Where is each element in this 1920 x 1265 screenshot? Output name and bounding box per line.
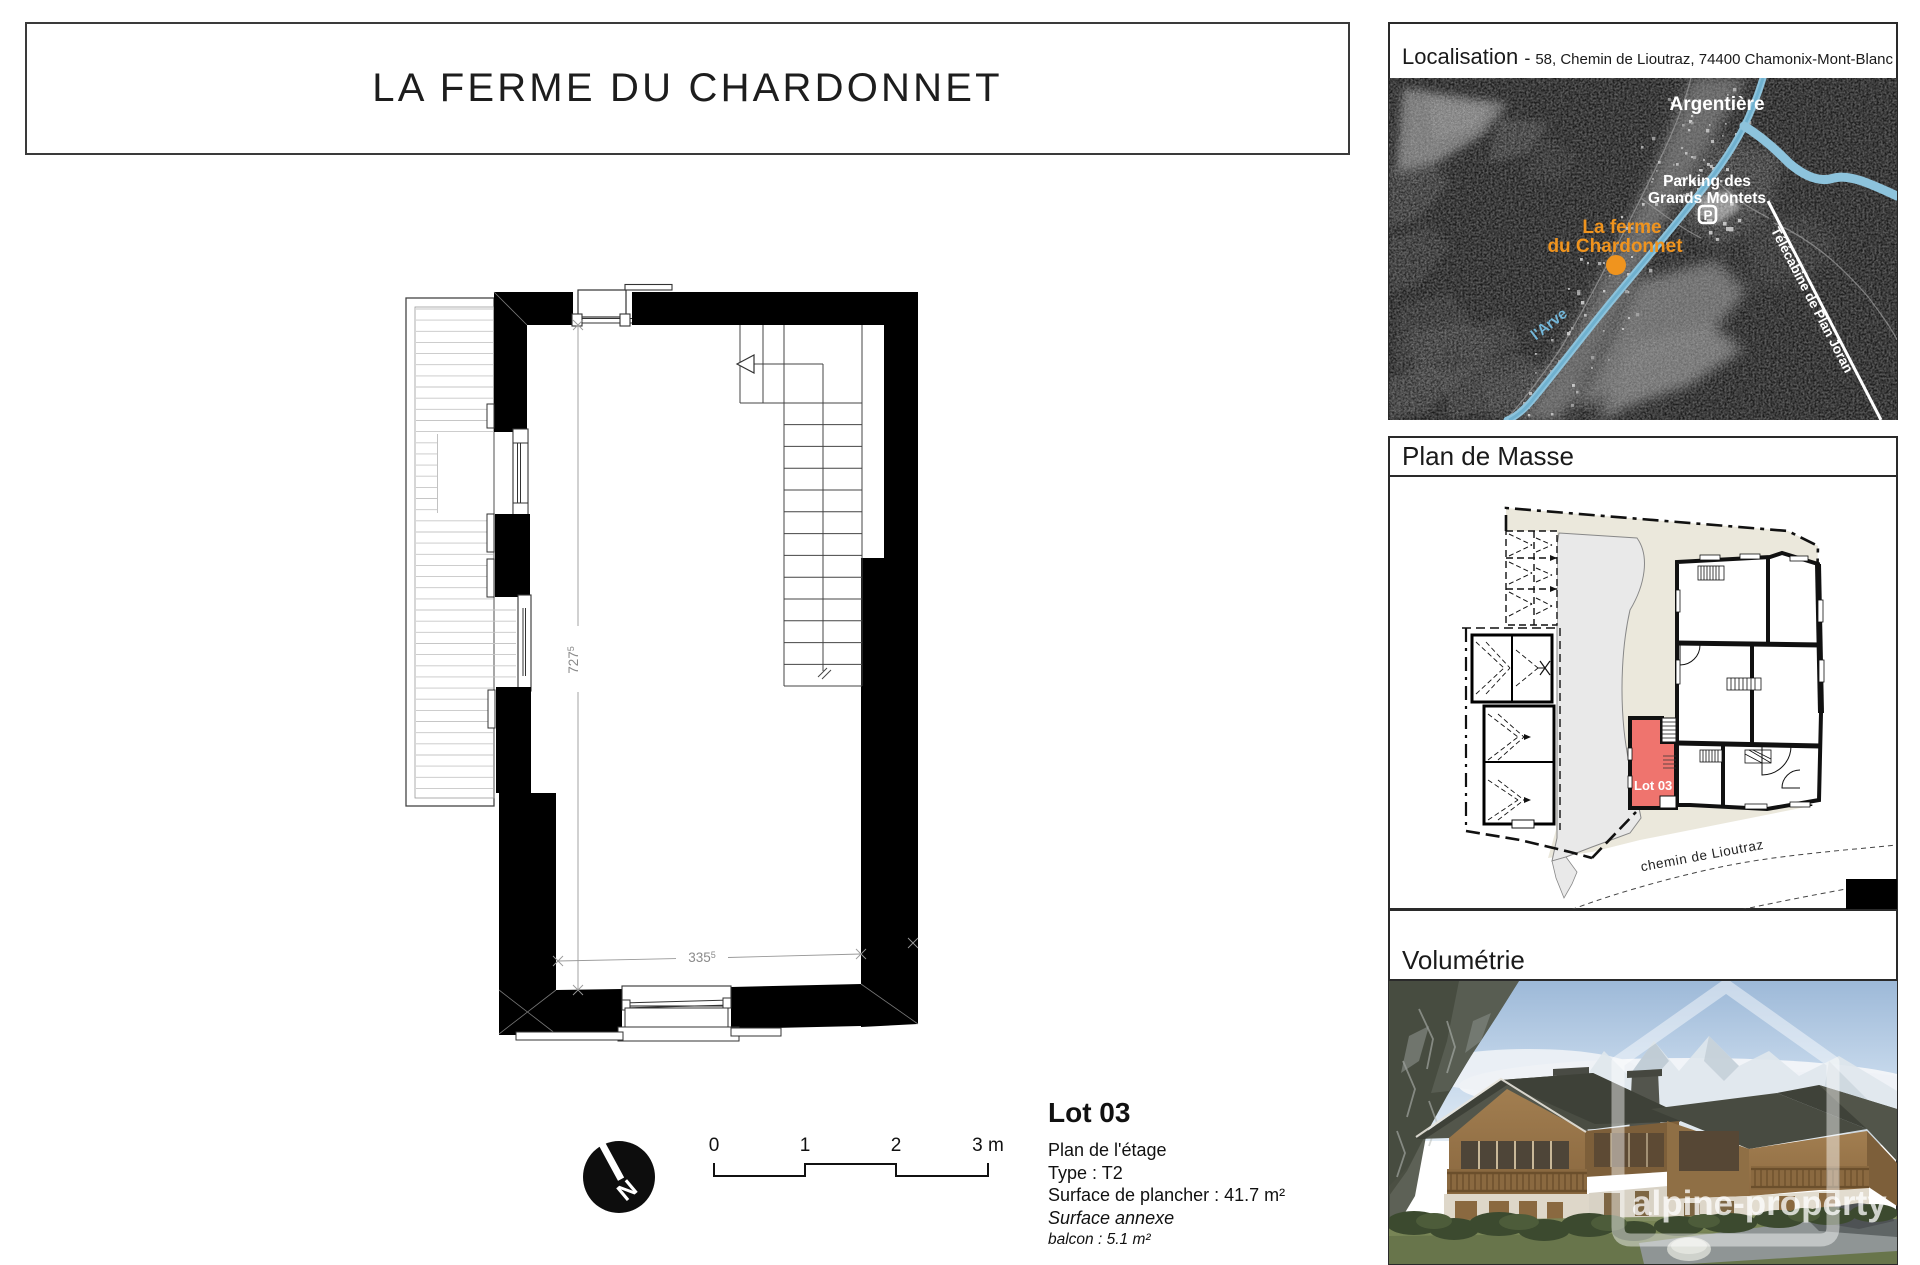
svg-text:3355: 3355 <box>688 950 716 965</box>
svg-text:P: P <box>1704 208 1713 223</box>
svg-text:chemin de Lioutraz: chemin de Lioutraz <box>1639 837 1765 875</box>
svg-text:0: 0 <box>709 1135 720 1156</box>
svg-text:Lot 03: Lot 03 <box>1634 778 1672 793</box>
svg-text:Argentière: Argentière <box>1669 94 1764 115</box>
svg-text:Parking des: Parking des <box>1663 173 1751 190</box>
svg-text:1: 1 <box>800 1135 811 1156</box>
svg-text:3 m: 3 m <box>972 1135 1004 1156</box>
svg-text:Grands Montets: Grands Montets <box>1648 190 1766 207</box>
svg-text:La ferme: La ferme <box>1582 217 1661 238</box>
svg-text:alpine-property: alpine-property <box>1632 1184 1887 1223</box>
svg-text:7275: 7275 <box>566 646 581 674</box>
svg-text:2: 2 <box>891 1135 902 1156</box>
svg-text:du Chardonnet: du Chardonnet <box>1547 236 1683 257</box>
